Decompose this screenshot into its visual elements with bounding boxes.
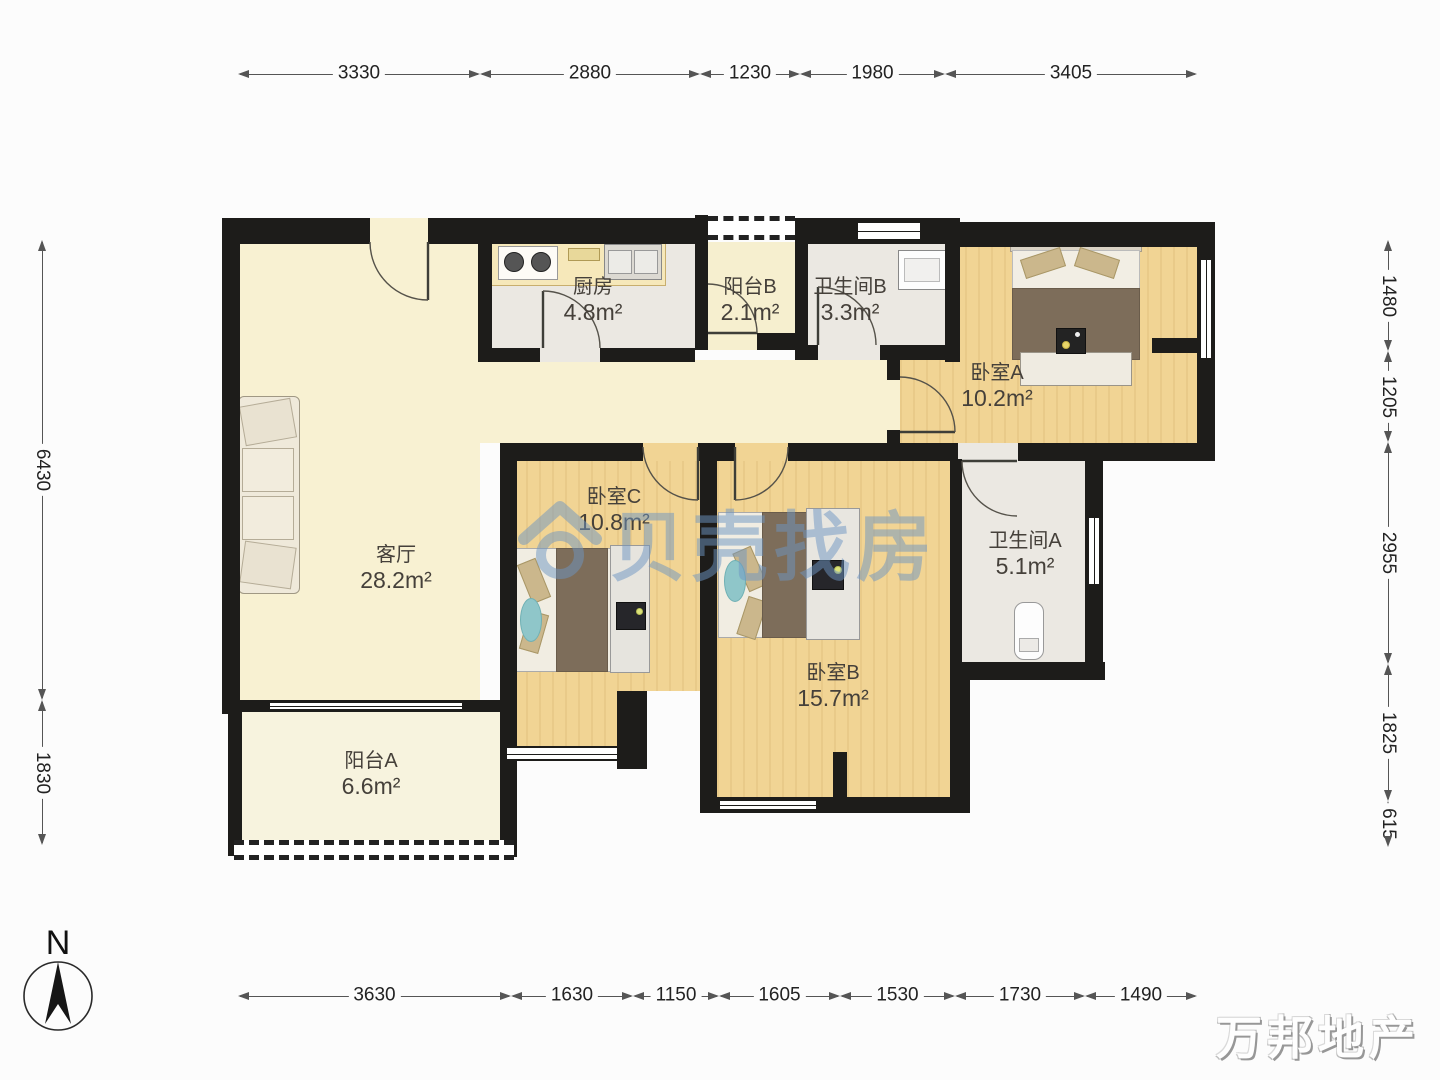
dimension-value: 3630 (348, 985, 400, 1007)
dimension-value: 1605 (753, 985, 805, 1007)
wall-segment (698, 443, 735, 461)
dimension-value: 1630 (546, 985, 598, 1007)
toilet-tank (1019, 638, 1039, 652)
compass-needle-icon (45, 962, 71, 1024)
wall-segment (695, 333, 708, 350)
washing-machine-lid (904, 258, 940, 282)
dimension-value: 1205 (1377, 370, 1399, 422)
room-name: 厨房 (564, 276, 623, 299)
dimension-value: 3330 (333, 63, 385, 85)
door-opening (708, 333, 757, 350)
dimension-right-3: 1825 (1374, 664, 1402, 801)
room-name: 客厅 (360, 544, 432, 567)
floor-bedroom-c (513, 691, 617, 747)
dimension-top-1: 2880 (480, 60, 700, 88)
tray-dot (1075, 332, 1080, 337)
room-area: 6.6m² (342, 773, 401, 799)
wall-segment (795, 345, 818, 360)
dimension-bottom-3: 1605 (719, 982, 840, 1010)
bed-a-bench (1020, 352, 1132, 386)
wall-segment (500, 443, 643, 461)
dimension-value: 6430 (31, 444, 53, 496)
wall-segment (945, 222, 1215, 247)
floor-hallway (478, 360, 890, 443)
room-label: 客厅28.2m² (360, 544, 432, 593)
brand-watermark-center: 贝壳找房 (512, 486, 938, 596)
dimension-top-0: 3330 (238, 60, 480, 88)
window (1199, 260, 1213, 358)
wall-segment (617, 691, 647, 769)
window (858, 221, 920, 241)
dimension-value: 1830 (31, 746, 53, 798)
sofa-cushion (242, 448, 294, 492)
dimension-right-4: 615 (1374, 801, 1402, 847)
wall-segment (887, 358, 900, 380)
dimension-value: 1730 (994, 985, 1046, 1007)
room-label: 卧室B15.7m² (797, 662, 869, 711)
dimension-left-1: 1830 (28, 700, 56, 845)
room-label: 厨房4.8m² (564, 276, 623, 325)
wall-segment (1018, 443, 1215, 461)
room-label: 卫生间B3.3m² (813, 276, 886, 325)
dimension-bottom-6: 1490 (1085, 982, 1197, 1010)
dimension-right-2: 2955 (1374, 442, 1402, 664)
dimension-value: 1530 (871, 985, 923, 1007)
tv-dot (636, 608, 643, 615)
dimension-left-0: 6430 (28, 240, 56, 700)
room-area: 10.2m² (961, 385, 1033, 411)
wall-segment (695, 215, 708, 336)
sink-basin (608, 250, 632, 274)
room-label: 阳台B2.1m² (721, 276, 780, 325)
dimension-value: 1480 (1377, 269, 1399, 321)
wall-segment (950, 680, 970, 813)
dimension-bottom-0: 3630 (238, 982, 511, 1010)
dimension-right-0: 1480 (1374, 240, 1402, 351)
tv (616, 602, 646, 630)
dimension-value: 1980 (846, 63, 898, 85)
wall-segment (833, 752, 847, 801)
room-label: 卫生间A5.1m² (988, 530, 1061, 579)
bed-a-tray (1056, 328, 1086, 354)
room-name: 阳台A (342, 750, 401, 773)
dimension-top-4: 3405 (945, 60, 1197, 88)
dimension-value: 2955 (1377, 527, 1399, 579)
window (270, 701, 462, 711)
dimension-bottom-4: 1530 (840, 982, 955, 1010)
round-stool (520, 598, 542, 642)
dimension-value: 3405 (1045, 63, 1097, 85)
floor-plan-page: 3330288012301980340536301630115016051530… (0, 0, 1440, 1080)
dimension-value: 1490 (1115, 985, 1167, 1007)
sofa-pillow (239, 541, 296, 590)
wall-segment (600, 348, 695, 362)
dimension-bottom-1: 1630 (511, 982, 633, 1010)
room-label: 阳台A6.6m² (342, 750, 401, 799)
agency-watermark: 万邦地产 (1216, 1002, 1420, 1068)
wall-segment (228, 710, 242, 856)
dimension-bottom-2: 1150 (633, 982, 719, 1010)
wall-segment (478, 218, 492, 362)
wall-segment (222, 218, 370, 244)
room-name: 卧室B (797, 662, 869, 685)
kitchen-hob (568, 248, 600, 261)
room-area: 5.1m² (988, 553, 1061, 579)
wall-segment (950, 459, 962, 680)
door-opening (370, 218, 428, 244)
dimension-value: 1825 (1377, 706, 1399, 758)
wall-segment (788, 443, 900, 461)
room-area: 28.2m² (360, 567, 432, 593)
door-opening (643, 443, 698, 461)
beike-house-logo-icon (512, 493, 608, 589)
compass-icon: N (10, 920, 110, 1038)
stove-burner-icon (504, 252, 524, 272)
room-name: 卫生间A (988, 530, 1061, 553)
wall-segment (950, 662, 1105, 680)
room-name: 卫生间B (813, 276, 886, 299)
room-area: 3.3m² (813, 299, 886, 325)
room-area: 2.1m² (721, 299, 780, 325)
room-label: 卧室A10.2m² (961, 362, 1033, 411)
dimension-value: 1230 (724, 63, 776, 85)
wall-segment (887, 430, 900, 461)
brand-watermark-text: 贝壳找房 (610, 486, 938, 596)
dimension-top-2: 1230 (700, 60, 800, 88)
wall-segment (880, 345, 955, 360)
compass-north-label: N (46, 924, 71, 962)
sink-basin (634, 250, 658, 274)
window (1087, 518, 1101, 584)
stove-burner-icon (531, 252, 551, 272)
wall-segment (428, 218, 695, 244)
balcony-open-edge (708, 216, 795, 240)
wall-segment (478, 348, 540, 362)
door-opening (818, 345, 880, 360)
wall-segment (945, 222, 960, 362)
dimension-top-3: 1980 (800, 60, 945, 88)
balcony-open-edge (234, 840, 514, 860)
sofa-cushion (242, 496, 294, 540)
dimension-value: 615 (1377, 803, 1399, 845)
wall-segment (795, 218, 808, 360)
door-opening (958, 443, 1018, 459)
window (720, 799, 816, 811)
door-opening (540, 348, 600, 362)
window (507, 746, 617, 761)
tray-lamp (1062, 341, 1070, 349)
dimension-value: 2880 (564, 63, 616, 85)
dimension-bottom-5: 1730 (955, 982, 1085, 1010)
door-opening (735, 443, 788, 461)
door-opening (887, 380, 900, 430)
dimension-value: 1150 (651, 985, 702, 1007)
room-name: 阳台B (721, 276, 780, 299)
room-name: 卧室A (961, 362, 1033, 385)
room-area: 15.7m² (797, 685, 869, 711)
wall-segment (222, 218, 240, 714)
room-area: 4.8m² (564, 299, 623, 325)
dimension-right-1: 1205 (1374, 351, 1402, 442)
